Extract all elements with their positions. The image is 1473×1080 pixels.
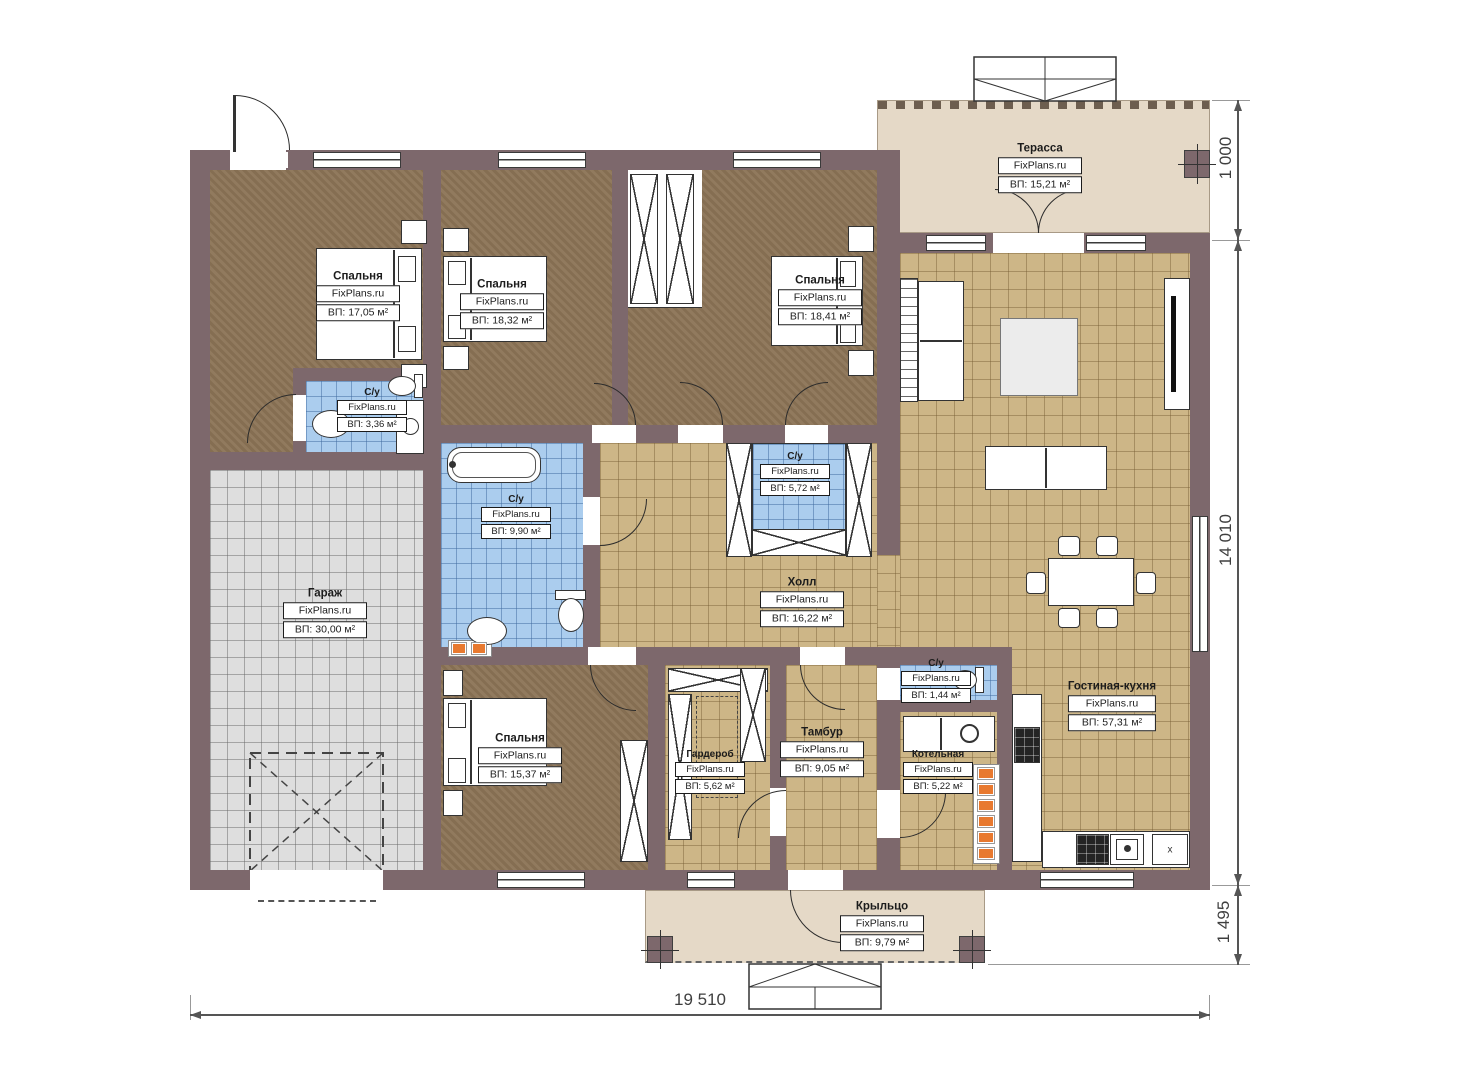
room-area: ВП: 9,79 м² (840, 934, 924, 951)
garage-apron (250, 888, 383, 908)
nightstand (443, 228, 469, 252)
wardrobe-cabinet (740, 668, 766, 762)
dimension-extension (1212, 240, 1250, 241)
window (1040, 872, 1134, 888)
room-label-porch: Крыльцо FixPlans.ru ВП: 9,79 м² (840, 901, 924, 951)
wall (583, 443, 600, 665)
dimension-value: 1 495 (1214, 901, 1234, 944)
dimension-line (1237, 100, 1239, 240)
room-label-living-kitchen: Гостиная-кухня FixPlans.ru ВП: 57,31 м² (1068, 681, 1156, 731)
wardrobe-cabinet (752, 529, 846, 556)
room-name: Гардероб (675, 750, 745, 760)
wardrobe-cabinet (846, 443, 872, 557)
chair (1096, 536, 1118, 556)
vent-icon (978, 816, 994, 827)
porch-post (647, 936, 673, 963)
window (687, 872, 735, 888)
room-name: Терасса (998, 143, 1082, 155)
room-label-bedroom-1: Спальня FixPlans.ru ВП: 17,05 м² (316, 271, 400, 321)
pillow (398, 256, 416, 282)
room-label-hall: Холл FixPlans.ru ВП: 16,22 м² (760, 577, 844, 627)
oven (1014, 727, 1040, 763)
terrace-post (1184, 150, 1210, 178)
room-name: Спальня (316, 271, 400, 283)
boiler-unit (960, 724, 979, 743)
terrace-hatch-edge (878, 101, 1209, 109)
watermark: FixPlans.ru (283, 602, 367, 619)
nightstand (848, 350, 874, 376)
vent-icon (978, 784, 994, 795)
room-area: ВП: 1,44 м² (901, 688, 971, 703)
boiler-counter (903, 716, 995, 752)
wardrobe-cabinet (666, 174, 694, 304)
room-name: Спальня (460, 279, 544, 291)
dining-table (1048, 558, 1134, 606)
watermark: FixPlans.ru (337, 400, 407, 415)
window (1086, 235, 1146, 251)
vent-icon (452, 643, 466, 654)
nightstand (443, 346, 469, 370)
garage-apron-dashes (258, 900, 376, 902)
faucet-icon (449, 461, 456, 468)
room-name: Спальня (478, 733, 562, 745)
watermark: FixPlans.ru (460, 293, 544, 310)
chair (1058, 608, 1080, 628)
room-label-terrace: Терасса FixPlans.ru ВП: 15,21 м² (998, 143, 1082, 193)
garage-gate-opening (250, 870, 383, 890)
vent-icon (472, 643, 486, 654)
door-gap (993, 233, 1084, 253)
dimension-arrow (1199, 1011, 1210, 1019)
dimension-arrow (1234, 100, 1242, 111)
watermark: FixPlans.ru (998, 157, 1082, 174)
room-area: ВП: 18,41 м² (778, 308, 862, 325)
room-label-bedroom-4: Спальня FixPlans.ru ВП: 15,37 м² (478, 733, 562, 783)
vent-icon (978, 800, 994, 811)
nightstand (401, 220, 427, 244)
room-name: С/у (481, 495, 551, 505)
sofa-cushion-divider (920, 340, 962, 342)
wall (423, 170, 441, 870)
window (733, 152, 821, 168)
dimension-arrow (1234, 954, 1242, 965)
room-label-garage: Гараж FixPlans.ru ВП: 30,00 м² (283, 588, 367, 638)
tv (1171, 296, 1176, 392)
room-label-tambour: Тамбур FixPlans.ru ВП: 9,05 м² (780, 727, 864, 777)
room-area: ВП: 9,05 м² (780, 760, 864, 777)
window (1192, 516, 1208, 652)
dimension-value: 14 010 (1216, 514, 1236, 566)
watermark: FixPlans.ru (478, 747, 562, 764)
bed-divider (470, 700, 472, 784)
wall (190, 452, 441, 470)
room-area: ВП: 18,32 м² (460, 312, 544, 329)
room-name: С/у (337, 388, 407, 398)
dimension-arrow (190, 1011, 201, 1019)
pillow (448, 703, 466, 728)
dimension-value: 19 510 (674, 990, 726, 1010)
terrace-stairs-icon (973, 56, 1117, 102)
pillow (448, 758, 466, 783)
garage-parking-zone (248, 751, 385, 873)
porch-stairs-icon (748, 963, 882, 1010)
door-gap (583, 497, 600, 545)
nightstand (443, 790, 463, 816)
chair (1096, 608, 1118, 628)
watermark: FixPlans.ru (481, 507, 551, 522)
room-area: ВП: 15,21 м² (998, 176, 1082, 193)
hall-living-opening (877, 555, 900, 647)
counter-divider (940, 718, 942, 750)
vent-icon (978, 768, 994, 779)
vent-icon (978, 848, 994, 859)
door-gap (293, 395, 306, 441)
room-name: С/у (901, 659, 971, 669)
room-area: ВП: 15,37 м² (478, 766, 562, 783)
appliance-x-label: x (1168, 845, 1173, 856)
room-area: ВП: 17,05 м² (316, 304, 400, 321)
room-label-bedroom-3: Спальня FixPlans.ru ВП: 18,41 м² (778, 275, 862, 325)
vent-icon (978, 832, 994, 843)
watermark: FixPlans.ru (316, 285, 400, 302)
toilet (558, 598, 584, 632)
room-area: ВП: 5,72 м² (760, 481, 830, 496)
kitchen-tall-cabinet (1012, 694, 1042, 862)
wardrobe-cabinet (630, 174, 658, 304)
chair (1136, 572, 1156, 594)
tv-console (1164, 278, 1190, 410)
nightstand (848, 226, 874, 252)
watermark: FixPlans.ru (1068, 695, 1156, 712)
room-area: ВП: 57,31 м² (1068, 714, 1156, 731)
dimension-extension (1212, 885, 1250, 886)
window (313, 152, 401, 168)
watermark: FixPlans.ru (780, 741, 864, 758)
room-label-boiler: Котельная FixPlans.ru ВП: 5,22 м² (903, 750, 973, 794)
rug (1000, 318, 1078, 396)
door-gap (678, 425, 723, 443)
watermark: FixPlans.ru (675, 762, 745, 777)
room-name: Тамбур (780, 727, 864, 739)
room-name: С/у (760, 452, 830, 462)
dimension-arrow (1234, 885, 1242, 896)
dimension-line (1237, 240, 1239, 885)
watermark: FixPlans.ru (760, 464, 830, 479)
room-area: ВП: 5,62 м² (675, 779, 745, 794)
room-label-bedroom-2: Спальня FixPlans.ru ВП: 18,32 м² (460, 279, 544, 329)
watermark: FixPlans.ru (901, 671, 971, 686)
door-threshold (230, 152, 288, 168)
wall (190, 150, 210, 890)
dimension-value: 1 000 (1216, 137, 1236, 180)
chair (1058, 536, 1080, 556)
pillow (398, 326, 416, 352)
dimension-line (1237, 885, 1239, 965)
shelf-unit (900, 278, 918, 402)
door-leaf (233, 95, 236, 152)
wall (612, 170, 628, 425)
dimension-arrow (1234, 240, 1242, 251)
door-gap (785, 425, 828, 443)
room-label-su-bedroom3: С/у FixPlans.ru ВП: 5,72 м² (760, 452, 830, 496)
door-gap (877, 790, 900, 838)
door-gap (788, 870, 843, 890)
room-label-su-tambour: С/у FixPlans.ru ВП: 1,44 м² (901, 659, 971, 703)
room-area: ВП: 3,36 м² (337, 417, 407, 432)
wardrobe-cabinet (726, 443, 752, 557)
dimension-arrow (1234, 874, 1242, 885)
watermark: FixPlans.ru (778, 289, 862, 306)
room-name: Гостиная-кухня (1068, 681, 1156, 693)
bathtub (447, 447, 541, 483)
room-label-su-bedroom1: С/у FixPlans.ru ВП: 3,36 м² (337, 388, 407, 432)
door-gap (770, 788, 786, 836)
wardrobe-cabinet (620, 740, 648, 862)
room-area: ВП: 16,22 м² (760, 610, 844, 627)
door-gap (588, 647, 636, 665)
door-gap (877, 668, 900, 700)
stove (1076, 834, 1109, 865)
floor-plan: x Спальня FixPlans.ru ВП: 17,05 м² Спаль… (0, 0, 1473, 1080)
window (498, 152, 586, 168)
room-name: Котельная (903, 750, 973, 760)
watermark: FixPlans.ru (760, 591, 844, 608)
watermark: FixPlans.ru (840, 915, 924, 932)
room-area: ВП: 9,90 м² (481, 524, 551, 539)
dimension-line (190, 1014, 1210, 1016)
room-area: ВП: 5,22 м² (903, 779, 973, 794)
room-area: ВП: 30,00 м² (283, 621, 367, 638)
door-gap (800, 647, 845, 665)
nightstand (443, 670, 463, 696)
dimension-arrow (1234, 229, 1242, 240)
dimension-extension (1212, 100, 1250, 101)
room-name: Спальня (778, 275, 862, 287)
room-name: Гараж (283, 588, 367, 600)
watermark: FixPlans.ru (903, 762, 973, 777)
wall (877, 150, 900, 555)
wall (648, 665, 665, 870)
window (926, 235, 986, 251)
sink (467, 617, 507, 645)
door-gap (592, 425, 636, 443)
room-label-wardrobe: Гардероб FixPlans.ru ВП: 5,62 м² (675, 750, 745, 794)
dimension-extension (988, 964, 1250, 965)
sofa-cushion-divider (1045, 448, 1047, 488)
chair (1026, 572, 1046, 594)
faucet-icon (1124, 845, 1131, 852)
floor-porch (645, 890, 985, 963)
room-name: Холл (760, 577, 844, 589)
room-name: Крыльцо (840, 901, 924, 913)
porch-post (959, 936, 985, 963)
window (497, 872, 585, 888)
room-label-su-main: С/у FixPlans.ru ВП: 9,90 м² (481, 495, 551, 539)
